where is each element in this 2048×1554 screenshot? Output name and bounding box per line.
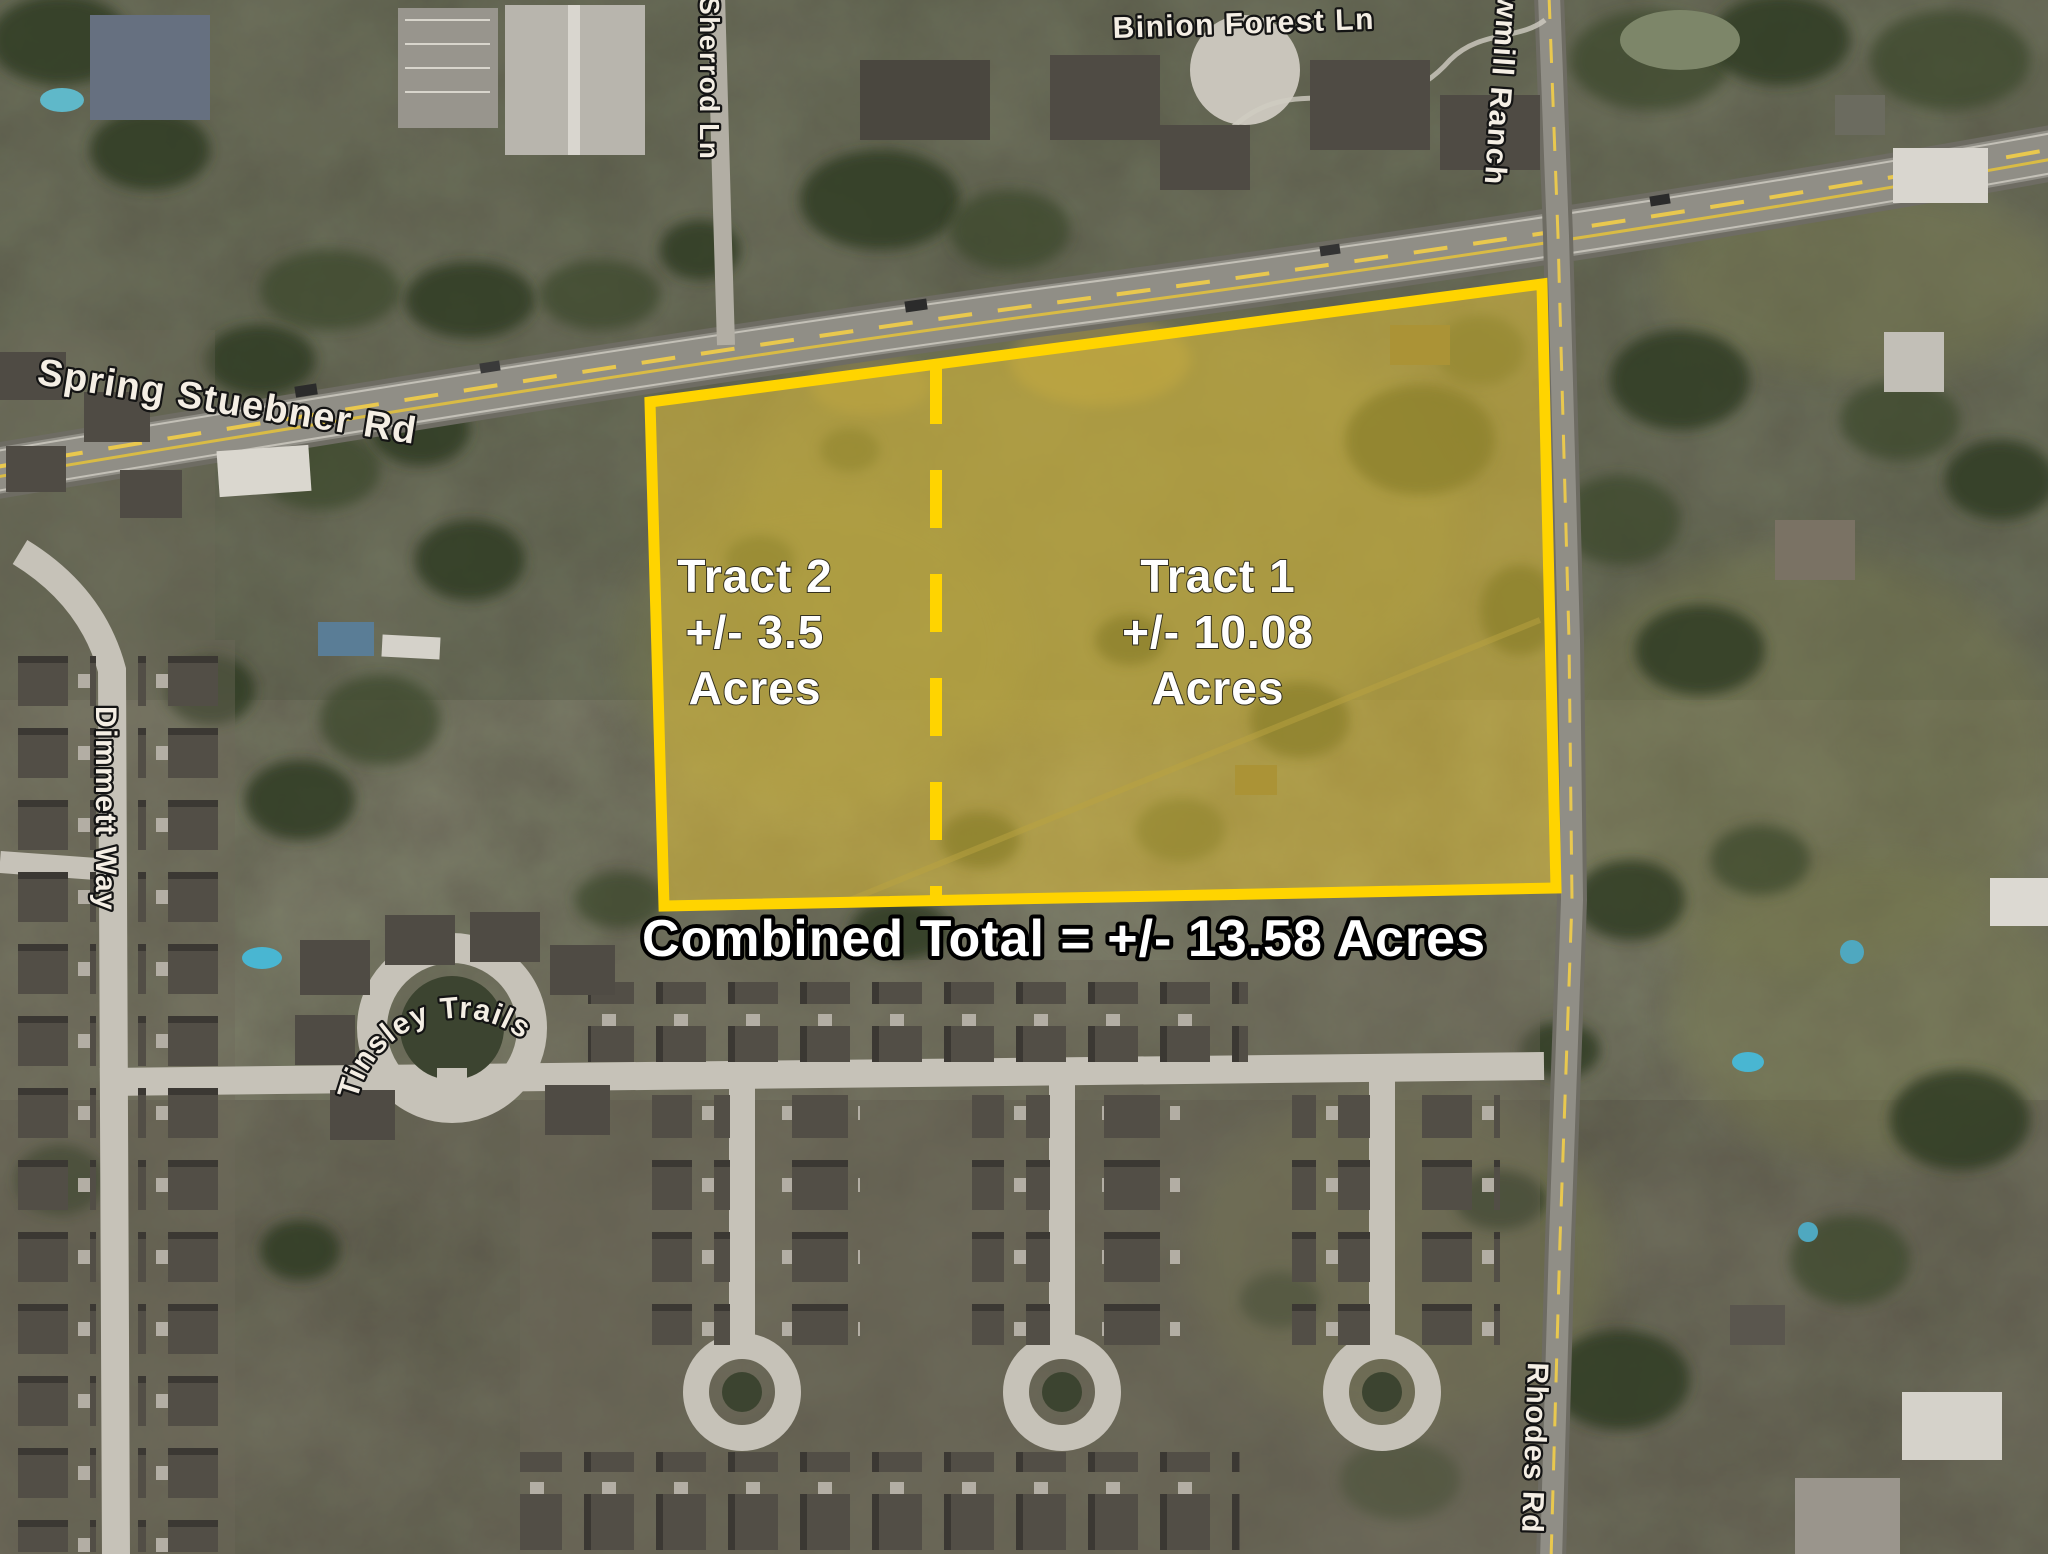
label-tract-2-acreage: +/- 3.5 [686, 606, 825, 658]
label-tract-1-title: Tract 1 [1140, 550, 1295, 602]
label-tract-1-unit: Acres [1152, 662, 1285, 714]
label-dimmett-way: Dimmett Way [89, 706, 122, 911]
label-tract-2-title: Tract 2 [677, 550, 832, 602]
label-combined-total: Combined Total = +/- 13.58 Acres [642, 910, 1486, 968]
map-canvas: Spring Stuebner Rd Sherrod Ln Binion For… [0, 0, 2048, 1554]
label-sherrod-ln: Sherrod Ln [694, 0, 725, 160]
label-rhodes-rd: Rhodes Rd [1515, 1362, 1554, 1535]
aerial-map-image: Spring Stuebner Rd Sherrod Ln Binion For… [0, 0, 2048, 1554]
label-tract-2-unit: Acres [689, 662, 822, 714]
label-tract-1-acreage: +/- 10.08 [1122, 606, 1314, 658]
street-horizontal [100, 1066, 1544, 1082]
